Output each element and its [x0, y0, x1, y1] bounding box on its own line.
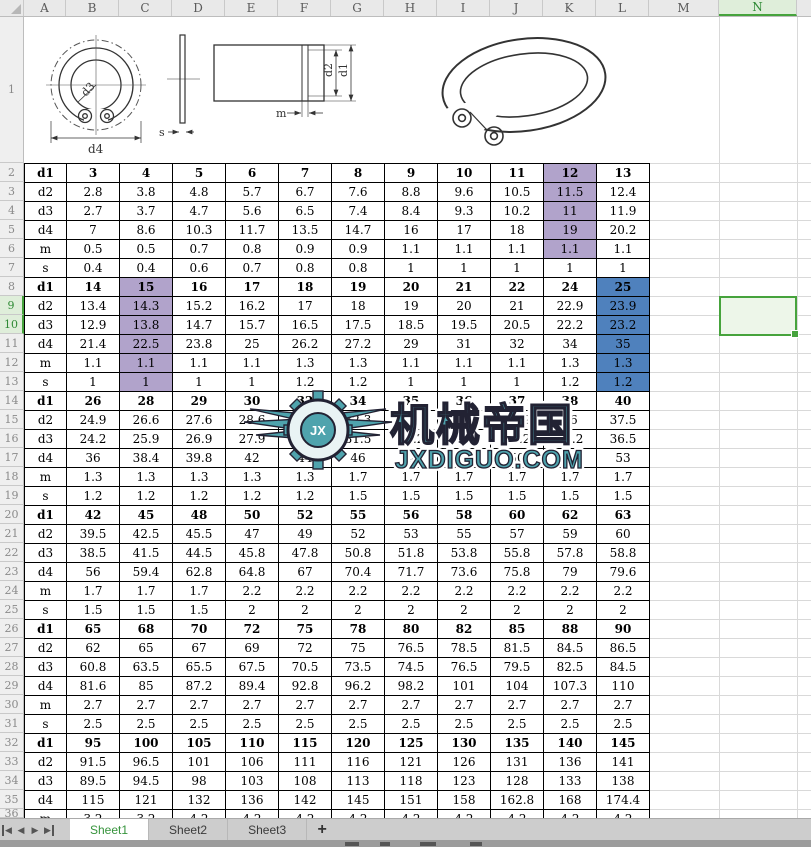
cell[interactable]: 0.4 — [120, 259, 173, 278]
cell[interactable]: 1.2 — [597, 373, 650, 392]
cell[interactable]: 1 — [438, 373, 491, 392]
row-label-cell[interactable]: d3 — [25, 202, 67, 221]
cell[interactable]: 2.7 — [332, 696, 385, 715]
row-header-36[interactable]: 36 — [0, 809, 24, 818]
cell[interactable]: 118 — [385, 772, 438, 791]
cell[interactable]: 68 — [120, 620, 173, 639]
row-header-9[interactable]: 9 — [0, 296, 24, 315]
cell[interactable]: 2 — [279, 601, 332, 620]
row-label-cell[interactable]: d2 — [25, 753, 67, 772]
cell[interactable]: 38 — [544, 392, 597, 411]
row-header-14[interactable]: 14 — [0, 391, 24, 410]
cell[interactable]: 126 — [438, 753, 491, 772]
cell[interactable]: 28 — [120, 392, 173, 411]
cell[interactable]: 1 — [120, 373, 173, 392]
cell[interactable]: 12.4 — [597, 183, 650, 202]
cell[interactable]: 25 — [597, 278, 650, 297]
cell[interactable]: 1.2 — [332, 373, 385, 392]
cell[interactable]: 90 — [597, 620, 650, 639]
row-header-35[interactable]: 35 — [0, 790, 24, 809]
row-label-cell[interactable]: d1 — [25, 506, 67, 525]
row-header-2[interactable]: 2 — [0, 163, 24, 182]
row-header-18[interactable]: 18 — [0, 467, 24, 486]
cell[interactable]: 17 — [438, 221, 491, 240]
cell[interactable]: 0.8 — [279, 259, 332, 278]
cell[interactable]: 34.2 — [491, 430, 544, 449]
cell[interactable]: 47.8 — [279, 544, 332, 563]
cell[interactable]: 70.4 — [332, 563, 385, 582]
cell[interactable]: 1.5 — [438, 487, 491, 506]
cell[interactable]: 101 — [173, 753, 226, 772]
cell[interactable]: 7.4 — [332, 202, 385, 221]
column-header-G[interactable]: G — [331, 0, 384, 16]
cell[interactable]: 35.2 — [544, 430, 597, 449]
cell[interactable]: 145 — [332, 791, 385, 810]
cell[interactable]: 27.6 — [173, 411, 226, 430]
cell[interactable]: 73.6 — [438, 563, 491, 582]
cell[interactable]: 15 — [120, 278, 173, 297]
cell[interactable]: 1 — [438, 259, 491, 278]
cell[interactable]: 9 — [385, 164, 438, 183]
cell[interactable]: 65.5 — [173, 658, 226, 677]
cell[interactable]: 92.8 — [279, 677, 332, 696]
cell[interactable]: 22.2 — [544, 316, 597, 335]
cell[interactable]: 58.8 — [597, 544, 650, 563]
column-header-F[interactable]: F — [278, 0, 331, 16]
cell[interactable]: 132 — [173, 791, 226, 810]
cell[interactable]: 1.2 — [279, 373, 332, 392]
cell[interactable]: 2.2 — [332, 582, 385, 601]
cell[interactable]: 1.1 — [67, 354, 120, 373]
cell[interactable]: 11 — [544, 202, 597, 221]
cell[interactable]: 14.7 — [173, 316, 226, 335]
row-header-13[interactable]: 13 — [0, 372, 24, 391]
cell[interactable]: 5.7 — [226, 183, 279, 202]
cell[interactable]: 15.7 — [226, 316, 279, 335]
cell[interactable]: 168 — [544, 791, 597, 810]
cell[interactable]: 0.7 — [173, 240, 226, 259]
row-label-cell[interactable]: d3 — [25, 772, 67, 791]
cell[interactable]: 103 — [226, 772, 279, 791]
row-header-4[interactable]: 4 — [0, 201, 24, 220]
cell[interactable]: 44.5 — [173, 544, 226, 563]
cell[interactable]: 6 — [226, 164, 279, 183]
row-header-5[interactable]: 5 — [0, 220, 24, 239]
cell[interactable]: 63 — [597, 506, 650, 525]
cell[interactable]: 36 — [544, 411, 597, 430]
cell[interactable]: 1.1 — [438, 354, 491, 373]
cell[interactable]: 72 — [226, 620, 279, 639]
row-header-25[interactable]: 25 — [0, 600, 24, 619]
cell[interactable]: 0.5 — [120, 240, 173, 259]
cell[interactable]: 82 — [438, 620, 491, 639]
cell[interactable]: 3.2 — [67, 810, 120, 819]
cell[interactable]: 0.7 — [226, 259, 279, 278]
cell[interactable]: 151 — [385, 791, 438, 810]
column-header-A[interactable]: A — [24, 0, 66, 16]
row-label-cell[interactable]: d2 — [25, 639, 67, 658]
cell[interactable]: 1.5 — [597, 487, 650, 506]
select-all-corner[interactable] — [0, 0, 24, 16]
cell[interactable]: 42.5 — [120, 525, 173, 544]
cell[interactable]: 1.5 — [173, 601, 226, 620]
cell[interactable]: 29 — [385, 335, 438, 354]
cell[interactable]: 30.3 — [279, 411, 332, 430]
cell[interactable]: 1.1 — [173, 354, 226, 373]
cell[interactable]: 4.2 — [332, 810, 385, 819]
cell[interactable]: 1 — [597, 259, 650, 278]
cell[interactable]: 2.5 — [385, 715, 438, 734]
cell[interactable]: 1 — [226, 373, 279, 392]
cell[interactable]: 18 — [279, 278, 332, 297]
cell[interactable]: 29 — [173, 392, 226, 411]
cell[interactable]: 4.8 — [173, 183, 226, 202]
cell[interactable]: 46 — [332, 449, 385, 468]
row-header-12[interactable]: 12 — [0, 353, 24, 372]
cell[interactable]: 9.6 — [438, 183, 491, 202]
cell[interactable]: 2.7 — [67, 202, 120, 221]
cell[interactable]: 24.2 — [67, 430, 120, 449]
cell[interactable]: 9.3 — [438, 202, 491, 221]
cell[interactable]: 2.2 — [544, 582, 597, 601]
cell[interactable]: 63.5 — [120, 658, 173, 677]
cell[interactable]: 27.2 — [332, 335, 385, 354]
cell[interactable]: 0.8 — [332, 259, 385, 278]
cell[interactable]: 85 — [120, 677, 173, 696]
row-header-22[interactable]: 22 — [0, 543, 24, 562]
cell[interactable]: 1.3 — [279, 468, 332, 487]
cell[interactable]: 26.6 — [120, 411, 173, 430]
cell[interactable]: 100 — [120, 734, 173, 753]
cell[interactable]: 19 — [385, 297, 438, 316]
cell[interactable]: 1 — [544, 259, 597, 278]
cell[interactable]: 11.9 — [597, 202, 650, 221]
cell[interactable]: 25 — [226, 335, 279, 354]
cell[interactable]: 1.2 — [173, 487, 226, 506]
row-label-cell[interactable]: m — [25, 696, 67, 715]
cell[interactable]: 76.5 — [438, 658, 491, 677]
cell[interactable]: 0.9 — [279, 240, 332, 259]
cell[interactable]: 38.5 — [67, 544, 120, 563]
row-header-23[interactable]: 23 — [0, 562, 24, 581]
row-header-11[interactable]: 11 — [0, 334, 24, 353]
cell[interactable]: 67 — [279, 563, 332, 582]
cell[interactable]: 67.5 — [226, 658, 279, 677]
cell[interactable]: 2.2 — [491, 582, 544, 601]
cell[interactable]: 81.5 — [491, 639, 544, 658]
cell[interactable]: 48 — [385, 449, 438, 468]
column-header-B[interactable]: B — [66, 0, 119, 16]
cell[interactable]: 1.5 — [120, 601, 173, 620]
cell[interactable]: 5 — [173, 164, 226, 183]
cell[interactable]: 20 — [438, 297, 491, 316]
row-header-20[interactable]: 20 — [0, 505, 24, 524]
cell[interactable]: 105 — [173, 734, 226, 753]
cell[interactable]: 1 — [67, 373, 120, 392]
sheet-nav-prev-button[interactable]: ◀ — [14, 819, 28, 841]
cell[interactable]: 16 — [385, 221, 438, 240]
row-label-cell[interactable]: d1 — [25, 164, 67, 183]
sheet-tab-Sheet1[interactable]: Sheet1 — [70, 819, 149, 841]
cell[interactable]: 1 — [385, 259, 438, 278]
cell[interactable]: 86.5 — [597, 639, 650, 658]
cell[interactable]: 32 — [491, 335, 544, 354]
cell[interactable]: 133 — [544, 772, 597, 791]
cell[interactable]: 47 — [226, 525, 279, 544]
row-header-21[interactable]: 21 — [0, 524, 24, 543]
cell[interactable]: 75.8 — [491, 563, 544, 582]
sheet-tab-Sheet2[interactable]: Sheet2 — [149, 819, 228, 841]
cell[interactable]: 39.8 — [173, 449, 226, 468]
cell[interactable]: 2.2 — [597, 582, 650, 601]
cell[interactable]: 19 — [332, 278, 385, 297]
cell[interactable]: 8.8 — [385, 183, 438, 202]
row-header-30[interactable]: 30 — [0, 695, 24, 714]
cell[interactable]: 40 — [597, 392, 650, 411]
cell[interactable]: 89.4 — [226, 677, 279, 696]
cell[interactable]: 36 — [438, 392, 491, 411]
cell[interactable]: 108 — [279, 772, 332, 791]
row-label-cell[interactable]: d4 — [25, 677, 67, 696]
cell[interactable]: 35 — [597, 335, 650, 354]
row-header-10[interactable]: 10 — [0, 315, 24, 334]
cell[interactable]: 1.2 — [67, 487, 120, 506]
cell[interactable]: 1.5 — [385, 487, 438, 506]
cell[interactable]: 2.7 — [385, 696, 438, 715]
cell[interactable]: 14.3 — [120, 297, 173, 316]
cell[interactable]: 11.5 — [544, 183, 597, 202]
cell[interactable]: 120 — [332, 734, 385, 753]
cell[interactable]: 1.3 — [226, 468, 279, 487]
cell[interactable]: 51.8 — [385, 544, 438, 563]
cell[interactable]: 72 — [279, 639, 332, 658]
cell[interactable]: 32.2 — [385, 430, 438, 449]
cell[interactable]: 1.7 — [67, 582, 120, 601]
cell[interactable]: 42 — [226, 449, 279, 468]
cell[interactable]: 131 — [491, 753, 544, 772]
cell[interactable]: 82.5 — [544, 658, 597, 677]
cell[interactable]: 110 — [226, 734, 279, 753]
cell[interactable]: 3 — [67, 164, 120, 183]
cell[interactable]: 79.5 — [491, 658, 544, 677]
row-header-7[interactable]: 7 — [0, 258, 24, 277]
cell[interactable]: 87.2 — [173, 677, 226, 696]
cell[interactable]: 62 — [67, 639, 120, 658]
row-label-cell[interactable]: d1 — [25, 734, 67, 753]
cell[interactable]: 1 — [491, 259, 544, 278]
cell[interactable]: 45.5 — [173, 525, 226, 544]
cell[interactable]: 55 — [438, 525, 491, 544]
row-label-cell[interactable]: d1 — [25, 620, 67, 639]
cell[interactable]: 96.2 — [332, 677, 385, 696]
cell[interactable]: 2.5 — [226, 715, 279, 734]
cell[interactable]: 88 — [544, 620, 597, 639]
cell[interactable]: 1.2 — [544, 373, 597, 392]
cell[interactable]: 1.7 — [438, 468, 491, 487]
cell[interactable]: 1.2 — [120, 487, 173, 506]
cell[interactable]: 2.5 — [597, 715, 650, 734]
cell[interactable]: 1.7 — [120, 582, 173, 601]
cell[interactable]: 1.5 — [67, 601, 120, 620]
cell[interactable]: 41.5 — [120, 544, 173, 563]
cell[interactable]: 1.5 — [332, 487, 385, 506]
cell[interactable]: 4.2 — [226, 810, 279, 819]
cell[interactable]: 125 — [385, 734, 438, 753]
cell[interactable]: 4.2 — [438, 810, 491, 819]
cell[interactable]: 1.7 — [385, 468, 438, 487]
cell[interactable]: 1.1 — [120, 354, 173, 373]
cell[interactable]: 34.9 — [491, 411, 544, 430]
cell[interactable]: 50 — [226, 506, 279, 525]
cell[interactable]: 4.2 — [491, 810, 544, 819]
cell[interactable]: 4 — [120, 164, 173, 183]
cell[interactable]: 130 — [438, 734, 491, 753]
row-header-6[interactable]: 6 — [0, 239, 24, 258]
cell[interactable]: 5.6 — [226, 202, 279, 221]
cell[interactable]: 70.5 — [279, 658, 332, 677]
row-header-26[interactable]: 26 — [0, 619, 24, 638]
row-header-19[interactable]: 19 — [0, 486, 24, 505]
cell[interactable]: 34 — [544, 335, 597, 354]
cell[interactable]: 91.5 — [67, 753, 120, 772]
circlip-technical-drawing[interactable]: d3 d4 s d2 d1 m — [24, 17, 649, 163]
cell[interactable]: 32 — [279, 392, 332, 411]
cell[interactable]: 16.2 — [226, 297, 279, 316]
cell[interactable]: 2.7 — [597, 696, 650, 715]
cell[interactable]: 2.7 — [226, 696, 279, 715]
cell[interactable]: 2.5 — [67, 715, 120, 734]
cell[interactable]: 49 — [438, 449, 491, 468]
cell[interactable]: 4.2 — [279, 810, 332, 819]
cell[interactable]: 1 — [173, 373, 226, 392]
cell[interactable]: 17 — [226, 278, 279, 297]
cell[interactable]: 60.8 — [67, 658, 120, 677]
row-header-1[interactable]: 1 — [0, 17, 24, 163]
cell[interactable]: 12.9 — [67, 316, 120, 335]
cell[interactable]: 2 — [332, 601, 385, 620]
cell[interactable]: 42 — [67, 506, 120, 525]
cell[interactable]: 13.8 — [120, 316, 173, 335]
cell[interactable]: 33 — [385, 411, 438, 430]
cell[interactable]: 19 — [544, 221, 597, 240]
cell[interactable]: 101 — [438, 677, 491, 696]
cell[interactable]: 1.1 — [491, 354, 544, 373]
row-label-cell[interactable]: m — [25, 240, 67, 259]
column-header-I[interactable]: I — [437, 0, 490, 16]
row-header-3[interactable]: 3 — [0, 182, 24, 201]
cell[interactable]: 1.7 — [544, 468, 597, 487]
cell[interactable]: 7 — [279, 164, 332, 183]
cell[interactable]: 2.2 — [438, 582, 491, 601]
cell[interactable]: 95 — [67, 734, 120, 753]
cell[interactable]: 62 — [544, 506, 597, 525]
cell[interactable]: 10.2 — [491, 202, 544, 221]
cell[interactable]: 73.5 — [332, 658, 385, 677]
cell[interactable]: 2.7 — [491, 696, 544, 715]
add-sheet-button[interactable]: + — [307, 819, 337, 841]
cell[interactable]: 2 — [385, 601, 438, 620]
column-header-L[interactable]: L — [596, 0, 649, 16]
cell[interactable]: 21 — [491, 297, 544, 316]
cell[interactable]: 21 — [438, 278, 491, 297]
cell[interactable]: 59.4 — [120, 563, 173, 582]
cell[interactable]: 1.7 — [491, 468, 544, 487]
cell[interactable]: 2.2 — [226, 582, 279, 601]
cell[interactable]: 23.2 — [597, 316, 650, 335]
cell[interactable]: 13.4 — [67, 297, 120, 316]
cell[interactable]: 6.5 — [279, 202, 332, 221]
cell[interactable]: 0.4 — [67, 259, 120, 278]
sheet-nav-next-button[interactable]: ▶ — [28, 819, 42, 841]
cell[interactable]: 1.1 — [385, 240, 438, 259]
cell[interactable]: 35 — [385, 392, 438, 411]
cell[interactable]: 53 — [597, 449, 650, 468]
row-label-cell[interactable]: s — [25, 259, 67, 278]
cell[interactable]: 84.5 — [544, 639, 597, 658]
cell[interactable]: 3.2 — [120, 810, 173, 819]
cell[interactable]: 2.8 — [67, 183, 120, 202]
cell[interactable]: 0.8 — [226, 240, 279, 259]
cell[interactable]: 20.2 — [597, 221, 650, 240]
cell[interactable]: 1.1 — [597, 240, 650, 259]
cell[interactable]: 50 — [491, 449, 544, 468]
cell[interactable]: 53 — [385, 525, 438, 544]
cell[interactable]: 31.5 — [332, 430, 385, 449]
row-label-cell[interactable]: d4 — [25, 221, 67, 240]
cell[interactable]: 58 — [438, 506, 491, 525]
cell[interactable]: 34 — [332, 392, 385, 411]
cell[interactable]: 62.8 — [173, 563, 226, 582]
cell[interactable]: 116 — [332, 753, 385, 772]
cell[interactable]: 16.5 — [279, 316, 332, 335]
cell[interactable]: 2.7 — [67, 696, 120, 715]
cell[interactable]: 96.5 — [120, 753, 173, 772]
cell[interactable]: 25.9 — [120, 430, 173, 449]
cell[interactable]: 1.3 — [120, 468, 173, 487]
cell[interactable]: 22.5 — [120, 335, 173, 354]
cell[interactable]: 17.5 — [332, 316, 385, 335]
cell[interactable]: 21.4 — [67, 335, 120, 354]
cell[interactable]: 30 — [226, 392, 279, 411]
cell[interactable]: 2 — [226, 601, 279, 620]
row-label-cell[interactable]: d4 — [25, 563, 67, 582]
cell[interactable]: 56 — [67, 563, 120, 582]
column-header-C[interactable]: C — [119, 0, 172, 16]
cell[interactable]: 1.5 — [544, 487, 597, 506]
cell[interactable]: 4.2 — [544, 810, 597, 819]
cell[interactable]: 13 — [597, 164, 650, 183]
cell[interactable]: 45 — [120, 506, 173, 525]
cell[interactable]: 2.7 — [120, 696, 173, 715]
cell[interactable]: 1 — [491, 373, 544, 392]
row-label-cell[interactable]: d3 — [25, 658, 67, 677]
cell[interactable]: 1.1 — [491, 240, 544, 259]
cell[interactable]: 44 — [279, 449, 332, 468]
cell[interactable]: 76.5 — [385, 639, 438, 658]
cell[interactable]: 28.6 — [226, 411, 279, 430]
cell[interactable]: 26.2 — [279, 335, 332, 354]
cell[interactable]: 174.4 — [597, 791, 650, 810]
column-header-N[interactable]: N — [719, 0, 797, 16]
column-header-E[interactable]: E — [225, 0, 278, 16]
cell[interactable]: 1.7 — [173, 582, 226, 601]
cell[interactable]: 1.3 — [332, 354, 385, 373]
cell[interactable]: 84.5 — [597, 658, 650, 677]
cell[interactable]: 158 — [438, 791, 491, 810]
row-label-cell[interactable]: d2 — [25, 411, 67, 430]
cell[interactable]: 2 — [544, 601, 597, 620]
cell[interactable]: 1.7 — [597, 468, 650, 487]
